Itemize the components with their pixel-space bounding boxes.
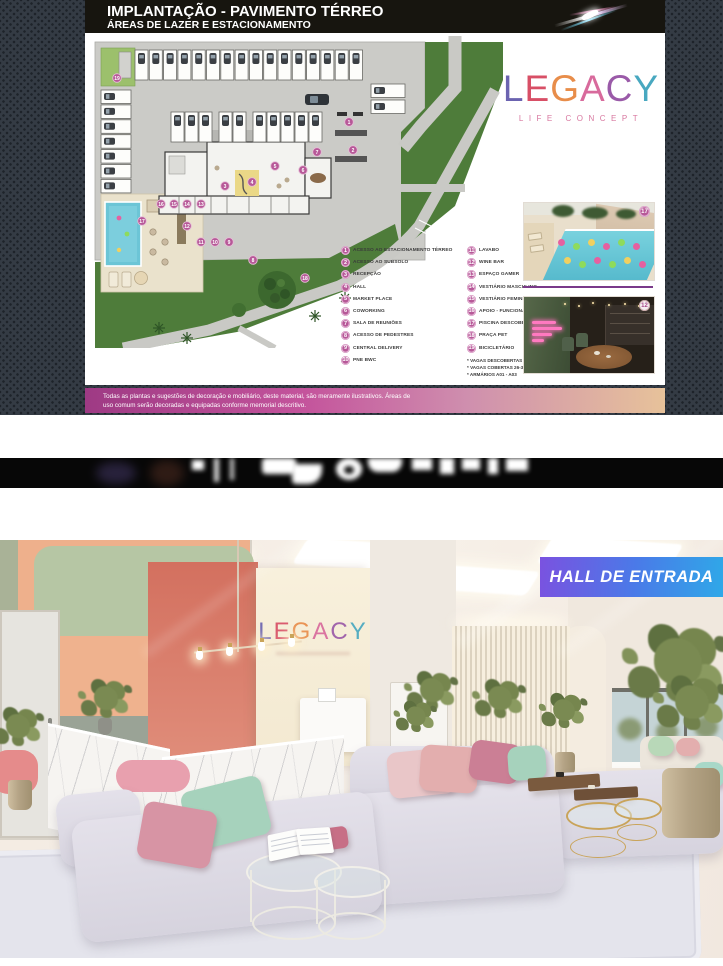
brand-wordmark: LEGACY [497,70,665,107]
legend-label: ACESSO DE PEDESTRES [353,333,414,338]
pillow-mint [507,745,547,782]
legend-number-badge: 18 [467,331,476,340]
legend-label: ACESSO AO ESTACIONAMENTO TÉRREO [353,248,453,253]
legend-number-badge: 19 [467,344,476,353]
tableware [594,351,600,355]
hall-de-entrada-render: LEGACY [0,540,723,958]
legend-number-badge: 6 [341,307,350,316]
table-leg [384,880,386,924]
neon-sign [532,333,552,336]
neon-sign [532,339,544,342]
brand-letter: C [330,618,349,645]
svg-text:3: 3 [224,184,227,190]
brand-letter: C [606,68,634,109]
decoration [230,458,234,480]
decoration [488,458,498,474]
wine-bar-render-thumbnail: 12 [523,296,655,374]
pouf [116,760,190,792]
legend-number-badge: 5 [341,295,350,304]
pillow-pink [136,800,219,870]
hall-badge-label: HALL DE ENTRADA [550,568,714,587]
pool-float [573,243,580,250]
table-decor [556,772,564,777]
brand-letter: L [503,68,525,109]
legend-number-badge: 3 [341,270,350,279]
light-bulb [288,637,295,647]
legend-item: 1ACESSO AO ESTACIONAMENTO TÉRREO [341,246,453,255]
lightning-logo [551,1,635,31]
brand-letter: A [312,618,330,645]
legend-column-1: 1ACESSO AO ESTACIONAMENTO TÉRREO2ACESSO … [341,246,453,379]
legend-number-badge: 8 [341,331,350,340]
legend-number-badge: 12 [467,258,476,267]
svg-text:16: 16 [158,202,164,208]
decoration [462,458,480,470]
thumbnail-number-badge: 17 [639,206,650,217]
neon-sign [532,321,556,324]
legend-number-badge: 11 [467,246,476,255]
legend-number-badge: 7 [341,319,350,328]
svg-text:13: 13 [198,202,204,208]
plan-card: IMPLANTAÇÃO - PAVIMENTO TÉRREO ÁREAS DE … [85,0,665,385]
reception-monitor [318,688,336,702]
chair [576,333,588,347]
legend-label: CENTRAL DELIVERY [353,346,403,351]
potted-plant [0,700,56,820]
legend-label: ESPAÇO GAMER [479,272,519,277]
svg-text:4: 4 [251,180,254,186]
svg-text:18: 18 [302,276,308,282]
brand-letter: Y [633,68,659,109]
chair [562,337,574,351]
decoration [412,458,432,470]
pool-float [603,243,610,250]
pool-floats [524,203,654,280]
legend-number-badge: 4 [341,283,350,292]
brand-tagline: LIFE CONCEPT [497,114,665,123]
legend-number-badge: 2 [341,258,350,267]
decoration [150,460,184,486]
tableware [606,355,611,358]
brochure-page: IMPLANTAÇÃO - PAVIMENTO TÉRREO ÁREAS DE … [0,0,723,966]
svg-text:9: 9 [228,240,231,246]
plan-title: IMPLANTAÇÃO - PAVIMENTO TÉRREO [107,3,383,20]
pool-float [633,243,640,250]
legend-number-badge: 15 [467,295,476,304]
hall-entrada-badge: HALL DE ENTRADA [540,557,723,597]
legend-number-badge: 17 [467,319,476,328]
svg-text:2: 2 [352,148,355,154]
neon-sign [532,327,562,330]
wall-logo: LEGACY [256,618,370,646]
decoration [440,458,454,474]
legend-label: MARKET PLACE [353,297,392,302]
pool-float [588,239,595,246]
potted-plant-large [636,610,723,850]
decoration [96,462,136,484]
legend-item: 9CENTRAL DELIVERY [341,344,453,353]
pool-float [594,257,601,264]
pool-float [624,257,631,264]
svg-text:12: 12 [184,224,190,230]
legend-number-badge: 13 [467,270,476,279]
light-bulb [196,650,203,660]
pool-render-thumbnail: 17 [523,202,655,281]
decoration [344,466,354,474]
brand-letter: A [580,68,606,109]
svg-text:17: 17 [139,219,145,225]
legend-label: COWORKING [353,309,385,314]
table-decor [588,785,595,789]
divider [523,286,653,288]
pool-float [618,239,625,246]
table-leg [250,870,252,922]
legend-number-badge: 9 [341,344,350,353]
svg-text:11: 11 [198,240,204,246]
svg-text:8: 8 [252,258,255,264]
table-leg [316,880,318,924]
desk-plant [84,680,128,736]
legend-item: 3RECEPÇÃO [341,270,453,279]
legend-number-badge: 10 [341,356,350,365]
pool-float [579,261,586,268]
plan-card-header: IMPLANTAÇÃO - PAVIMENTO TÉRREO ÁREAS DE … [85,0,665,33]
legend-label: BICICLETÁRIO [479,346,514,351]
page-margin [0,958,723,966]
shelf [605,305,654,345]
brand-letter: Y [350,618,368,645]
obscured-text-band [0,458,723,488]
brand-logo: LEGACY LIFE CONCEPT [497,70,665,123]
decoration [214,458,219,482]
svg-text:14: 14 [184,202,190,208]
legend-item: 7SALA DE REUNIÕES [341,319,453,328]
disclaimer-text: Todas as plantas e sugestões de decoraçã… [103,392,413,411]
brand-letter: E [525,68,551,109]
legend-item: 2ACESSO AO SUBSOLO [341,258,453,267]
legend-number-badge: 1 [341,246,350,255]
light-bulb [226,646,233,656]
svg-text:1: 1 [348,120,351,126]
plan-subtitle: ÁREAS DE LAZER E ESTACIONAMENTO [107,19,311,31]
svg-text:6: 6 [302,168,305,174]
legend-number-badge: 14 [467,283,476,292]
decoration [292,464,322,484]
svg-text:5: 5 [274,164,277,170]
decoration [262,458,296,474]
round-table [576,345,632,369]
legend-label: RECEPÇÃO [353,272,381,277]
legend-label: ACESSO AO SUBSOLO [353,260,408,265]
legend-item: 10PNE BWC [341,356,453,365]
pool-float [558,239,565,246]
legend-item: 6COWORKING [341,307,453,316]
decoration [506,458,528,471]
legend-item: 5MARKET PLACE [341,295,453,304]
open-book [296,827,334,855]
pool-float [609,261,616,268]
legend-label: PRAÇA PET [479,333,507,338]
pool-float [639,261,646,268]
decoration [368,458,402,472]
legend-label: WINE BAR [479,260,504,265]
legend-label: LAVABO [479,248,499,253]
legend-number-badge: 16 [467,307,476,316]
thumbnail-number-badge: 12 [639,300,650,311]
wall-logo-tagline [276,652,350,655]
legend-label: SALA DE REUNIÕES [353,321,402,326]
brand-letter: G [550,68,580,109]
disclaimer-bar: Todas as plantas e sugestões de decoraçã… [85,388,665,413]
legend-label: HALL [353,285,366,290]
gold-nesting-table-base [570,836,626,858]
legend-label: PNE BWC [353,358,376,363]
svg-text:10: 10 [212,240,218,246]
light-bulb [258,641,265,651]
svg-text:15: 15 [171,202,177,208]
svg-text:7: 7 [316,150,319,156]
pool-float [564,257,571,264]
legend-item: 4HALL [341,283,453,292]
legend-item: 8ACESSO DE PEDESTRES [341,331,453,340]
site-plan-section: IMPLANTAÇÃO - PAVIMENTO TÉRREO ÁREAS DE … [0,0,723,415]
wire-nesting-table [314,866,390,898]
wire-nesting-table-base [318,912,386,940]
string-lights [564,301,644,307]
decoration [192,460,204,470]
svg-text:19: 19 [114,76,120,82]
